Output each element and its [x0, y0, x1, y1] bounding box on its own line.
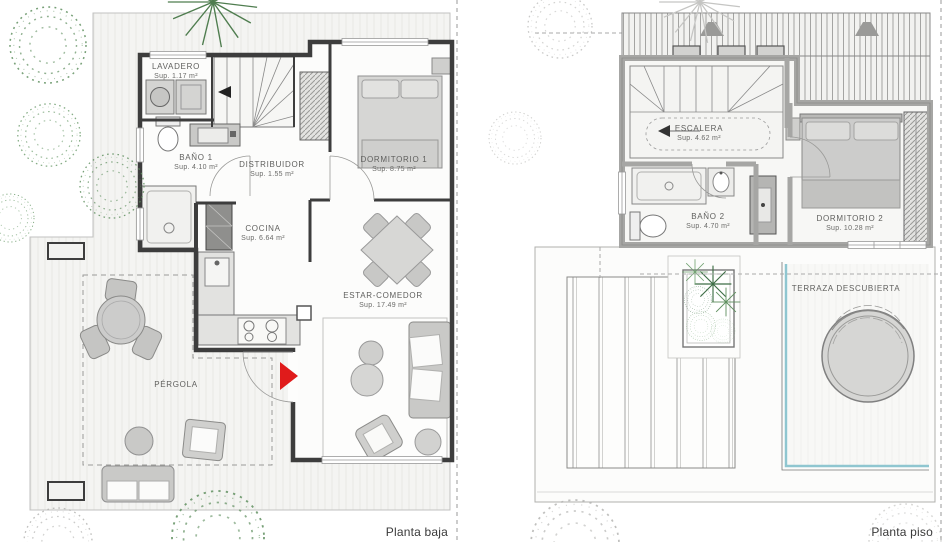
- washbasin-2: [708, 168, 734, 196]
- flue-box: [297, 306, 311, 320]
- room-label-distribuidor: DISTRIBUIDORSup. 1.55 m²: [239, 160, 305, 179]
- room-label-dormitorio-2: DORMITORIO 2Sup. 10.28 m²: [817, 214, 884, 233]
- outdoor-sofa: [102, 466, 174, 502]
- shower-2: [632, 168, 706, 204]
- room-label-bano-2: BAÑO 2Sup. 4.70 m²: [686, 212, 730, 231]
- room-label-estar-comedor: ESTAR-COMEDORSup. 17.49 m²: [343, 291, 423, 310]
- living-pouf: [415, 429, 441, 455]
- coffee-table-small: [359, 341, 383, 365]
- outdoor-pouf: [125, 427, 153, 455]
- staircase: [214, 57, 294, 127]
- floorplan-sheet: LAVADEROSup. 1.17 m² BAÑO 1Sup. 4.10 m² …: [0, 0, 948, 542]
- room-label-bano-1: BAÑO 1Sup. 4.10 m²: [174, 153, 218, 172]
- dining-set: [361, 212, 433, 288]
- nightstand: [432, 58, 452, 74]
- room-label-escalera: ESCALERASup. 4.62 m²: [675, 124, 723, 143]
- planter-box: [668, 256, 740, 358]
- room-label-lavadero: LAVADEROSup. 1.17 m²: [152, 62, 200, 81]
- garden-step: [48, 243, 84, 259]
- room-label-terraza: TERRAZA DESCUBIERTA: [792, 284, 901, 294]
- room-label-dormitorio-1: DORMITORIO 1Sup. 8.75 m²: [361, 155, 428, 174]
- garden-step: [48, 482, 84, 500]
- wardrobe-1: [300, 72, 330, 140]
- upper-staircase: [630, 66, 783, 158]
- caption-planta-baja: Planta baja: [300, 525, 448, 539]
- plan-drawing-planta-baja: [0, 0, 452, 542]
- plan-drawing-planta-piso: [489, 0, 941, 542]
- outdoor-armchair: [182, 419, 226, 461]
- floorplan-drawing: [0, 0, 948, 542]
- coffee-table-large: [351, 364, 383, 396]
- room-label-cocina: COCINASup. 6.64 m²: [241, 224, 285, 243]
- toilet: [156, 117, 180, 151]
- cooktop: [238, 318, 286, 344]
- bed-2: [786, 114, 902, 208]
- sofa: [409, 322, 451, 418]
- bathroom-vanity: [190, 124, 240, 146]
- shower-tray: [142, 186, 196, 248]
- washer-units: [146, 80, 206, 114]
- room-label-pergola: PÉRGOLA: [154, 380, 198, 390]
- wardrobe-2: [904, 112, 929, 242]
- caption-planta-piso: Planta piso: [785, 525, 933, 539]
